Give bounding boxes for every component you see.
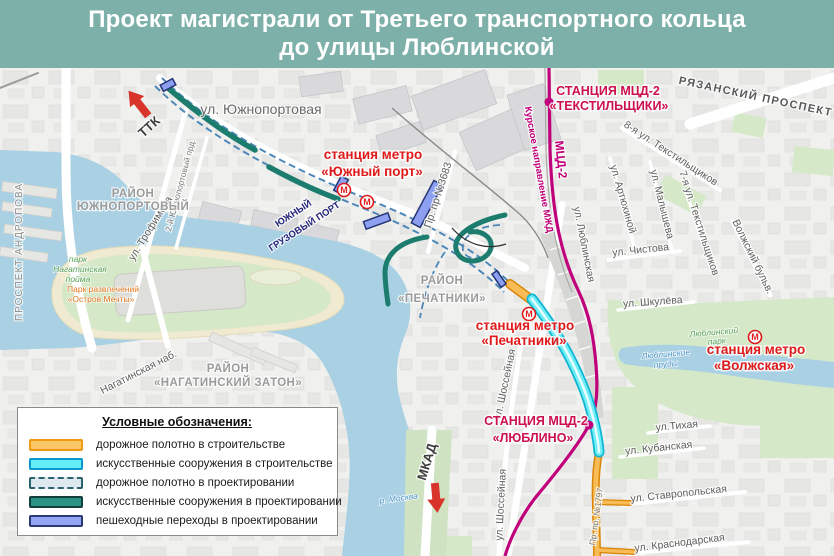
svg-text:М: М (363, 197, 371, 207)
map-label-53: «Волжская» (714, 358, 794, 373)
legend-label-0: дорожное полотно в строительстве (96, 439, 285, 451)
page-title-line1: Проект магистрали от Третьего транспортн… (88, 6, 746, 34)
map-label-9: РАЙОН (112, 187, 154, 200)
legend-swatch-3 (29, 496, 83, 508)
legend-title: Условные обозначения: (29, 415, 325, 429)
svg-text:М: М (751, 332, 759, 342)
map-label-36: «ТЕКСТИЛЬЩИКИ» (550, 99, 669, 113)
legend-swatch-0 (29, 439, 83, 451)
map-infographic: ММММ ул. Южнопортоваястанция метро«Южный… (0, 0, 834, 556)
map-label-20: РАЙОН (421, 274, 463, 287)
legend-item-0: дорожное полотно в строительстве (29, 435, 337, 454)
map-label-27: «ЛЮБЛИНО» (493, 431, 574, 445)
legend-item-4: пешеходные переходы в проектировании (29, 511, 337, 530)
legend-box: Условные обозначения: дорожное полотно в… (17, 407, 338, 536)
metro-icon-0: М (338, 184, 351, 197)
legend-swatch-2 (29, 477, 83, 489)
header: Проект магистрали от Третьего транспортн… (0, 0, 834, 68)
legend-rows: дорожное полотно в строительствеискусств… (29, 435, 337, 530)
legend-label-2: дорожное полотно в проектировании (96, 477, 294, 489)
legend-label-3: искусственные сооружения в проектировани… (96, 496, 342, 508)
map-label-13: Нагатинская (53, 264, 107, 274)
map-label-10: ЮЖНОПОРТОВЫЙ (77, 200, 189, 213)
map-label-2: «Южный порт» (321, 164, 423, 179)
map-label-22: станция метро (476, 318, 574, 333)
map-label-21: «ПЕЧАТНИКИ» (398, 293, 486, 305)
map-label-23: «Печатники» (481, 333, 566, 348)
map-label-14: пойма (66, 274, 91, 284)
map-label-12: парк (69, 254, 88, 264)
page-title-line2: до улицы Люблинской (279, 34, 555, 62)
svg-text:М: М (340, 185, 348, 195)
legend-label-4: пешеходные переходы в проектировании (96, 515, 318, 527)
legend-item-1: искусственные сооружения в строительстве (29, 454, 337, 473)
map-label-11: ПРОСПЕКТ АНДРОПОВА (14, 183, 25, 321)
legend-swatch-4 (29, 515, 83, 527)
map-label-0: ул. Южнопортовая (200, 101, 321, 117)
legend-label-1: искусственные сооружения в строительстве (96, 458, 333, 470)
legend-swatch-1 (29, 458, 83, 470)
map-label-19: «НАГАТИНСКИЙ ЗАТОН» (154, 376, 302, 389)
metro-icon-1: М (361, 196, 374, 209)
map-label-16: «Остров Мечты» (68, 294, 135, 304)
map-label-18: РАЙОН (207, 362, 249, 375)
map-label-35: СТАНЦИЯ МЦД-2 (556, 84, 660, 98)
map-label-15: Парк развлечений (67, 284, 139, 294)
map-label-1: станция метро (324, 147, 422, 162)
map-label-26: СТАНЦИЯ МЦД-2 (484, 414, 588, 428)
legend-item-2: дорожное полотно в проектировании (29, 473, 337, 492)
legend-item-3: искусственные сооружения в проектировани… (29, 492, 337, 511)
map-label-52: станция метро (707, 342, 805, 357)
